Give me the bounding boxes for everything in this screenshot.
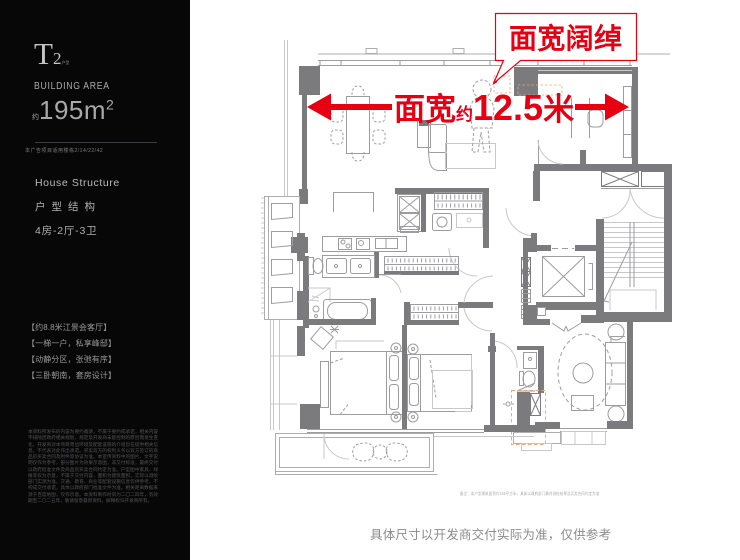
svg-text:面宽阔绰: 面宽阔绰 <box>509 22 622 54</box>
svg-text:面宽约12.5米: 面宽约12.5米 <box>394 87 574 128</box>
